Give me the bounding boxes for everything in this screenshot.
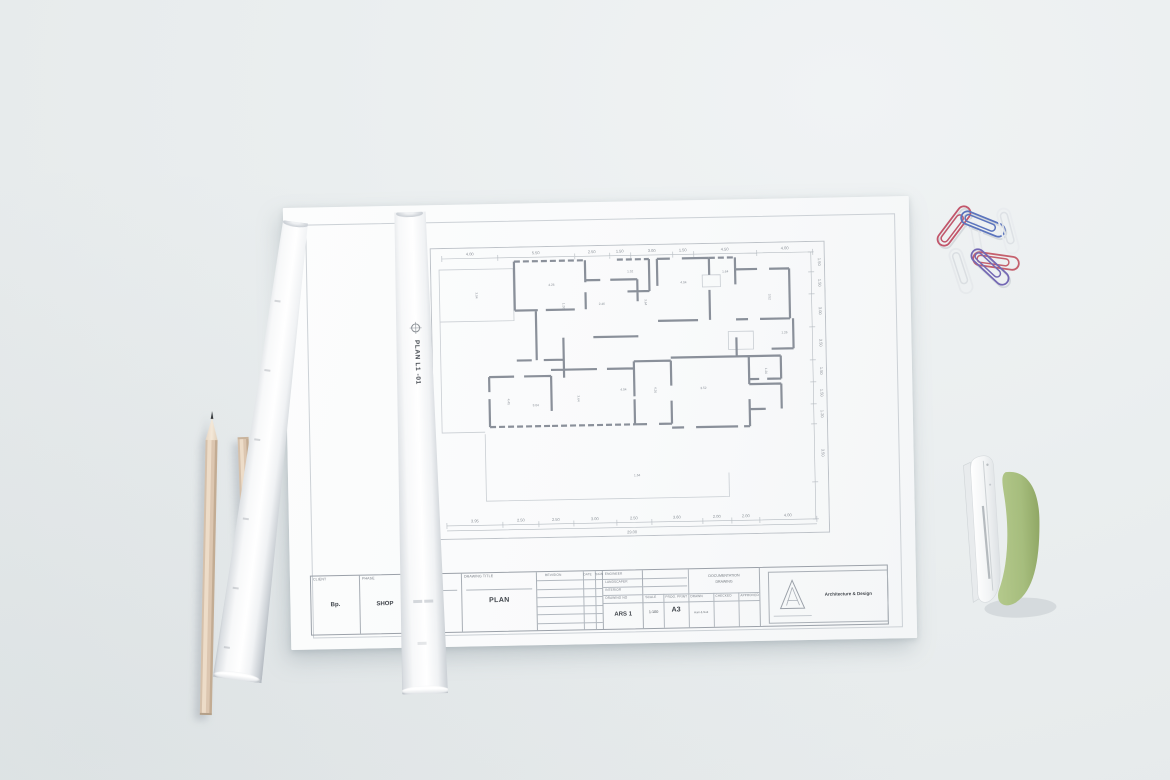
scale-label: SCALE (645, 595, 656, 599)
titleblock-revision-grid: REVISION DATE SIGN (537, 571, 604, 630)
drawn-label: DRAWN (690, 594, 702, 598)
titleblock-print-grid: DOCUMENTATION DRAWING SCALE PROG. PRINT … (643, 568, 761, 628)
client-value: Bp. (311, 602, 359, 609)
phase-label: PHASE (362, 576, 375, 580)
drawing-sheet: 4.00 5.50 2.50 1.50 3.00 1.50 4.50 4.00 … (283, 196, 917, 650)
room-label: 4.26 (653, 387, 657, 394)
prog-print-value: A3 (664, 606, 689, 613)
roll-end-bottom (401, 685, 450, 698)
titleblock-client-cell: CLIENT Bp. (311, 576, 361, 635)
dim-right: 3.50 (818, 339, 823, 348)
dim-bottom: 4.00 (784, 512, 793, 517)
dim-right: 1.50 (817, 279, 822, 288)
paper-clips (928, 193, 1043, 308)
dim-top: 5.50 (532, 250, 541, 255)
dim-top: 2.50 (588, 249, 597, 254)
dim-bottom: 2.50 (552, 517, 561, 522)
roll-end-bottom (213, 669, 261, 686)
title-block: CLIENT Bp. PHASE SHOP PROJECT LOCATION D… (310, 565, 889, 636)
room-label: 2.46 (599, 302, 606, 306)
dim-top: 3.00 (648, 248, 657, 253)
room-label: 4.45 (507, 399, 511, 406)
company-logo-box: Architecture & Design (768, 570, 889, 624)
dim-top: 1.50 (679, 247, 688, 252)
room-label: 1.26 (764, 368, 768, 375)
dim-right-column: 1.50 1.50 3.00 3.50 1.50 1.50 1.20 3.50 (817, 258, 826, 458)
room-label: 4.26 (548, 283, 555, 287)
floor-plan: 4.00 5.50 2.50 1.50 3.00 1.50 4.50 4.00 … (430, 241, 831, 541)
logo-subtext-line (774, 615, 812, 617)
dim-right: 1.50 (817, 258, 822, 267)
documentation-cell: DOCUMENTATION DRAWING (688, 568, 760, 593)
landscaper-label: LANDSCAPER (605, 579, 628, 583)
desk-surface: 4.00 5.50 2.50 1.50 3.00 1.50 4.50 4.00 … (0, 0, 1170, 780)
dim-bottom: 2.50 (630, 515, 639, 520)
dim-right: 1.50 (819, 367, 824, 376)
room-label: 3.04 (474, 292, 478, 299)
plan-window-walls (487, 257, 738, 427)
titleblock-drawing-title-cell: DRAWING TITLE PLAN (462, 572, 538, 631)
prog-print-label: PROG. PRINT (665, 594, 687, 598)
room-label: 3.04 (533, 403, 540, 407)
room-label: 3.64 (576, 395, 580, 402)
room-label: 3.52 (700, 386, 707, 390)
room-label: 1.26 (562, 303, 566, 310)
room-labels: 3.04 4.26 1.26 2.46 1.52 3.64 4.04 1.64 … (474, 266, 790, 480)
north-symbol-icon (409, 322, 421, 334)
interior-label: INTERIOR (605, 588, 621, 592)
sharpened-wood-collar (206, 418, 218, 440)
dim-bottom: 3.60 (673, 514, 682, 519)
dim-top: 4.00 (466, 251, 475, 256)
dim-top: 4.00 (781, 245, 790, 250)
dim-right: 3.00 (818, 307, 823, 316)
dim-top: 4.50 (721, 246, 730, 251)
dim-top: 1.50 (616, 249, 625, 254)
dim-bottom: 2.00 (713, 514, 722, 519)
documentation-label-line2: DRAWING (688, 579, 760, 584)
titleblock-engineer-stack: ENGINEER LANDSCAPER INTERIOR DRAWING NO … (603, 570, 644, 629)
room-label: 4.04 (680, 280, 687, 284)
drawing-no-value: ARS 1 (604, 611, 643, 618)
drawn-value: Hani & Nati (689, 610, 714, 614)
revision-label: REVISION (545, 573, 562, 577)
scale-value: 1:100 (644, 610, 664, 614)
room-label: 4.04 (620, 387, 627, 391)
room-label: 1.26 (781, 330, 788, 334)
dim-right: 1.20 (820, 410, 825, 419)
drawing-title-value: PLAN (462, 596, 536, 604)
drawing-no-label: DRAWING NO (605, 596, 627, 600)
room-label: 3.64 (644, 299, 648, 306)
engineer-label: ENGINEER (605, 572, 623, 576)
architecture-logo-icon (777, 578, 808, 613)
company-name: Architecture & Design (811, 591, 885, 597)
dim-right: 1.50 (819, 389, 824, 398)
dim-right: 3.50 (821, 449, 826, 458)
dim-bottom: 2.50 (517, 517, 526, 522)
stapler (947, 448, 1073, 627)
graphite-tip-icon (209, 411, 215, 419)
drawing-title-label: DRAWING TITLE (464, 574, 493, 579)
dim-bottom-total: 29.00 (627, 529, 638, 534)
room-label: 1.64 (634, 473, 641, 477)
dim-bottom: 2.00 (742, 513, 751, 518)
paperclip-white-lower (948, 247, 975, 295)
room-label: 1.52 (627, 269, 634, 273)
client-label: CLIENT (313, 577, 326, 581)
date-label: DATE (583, 572, 591, 576)
approved-label: APPROVED (740, 593, 759, 597)
room-label: 1.64 (722, 270, 729, 274)
stapler-green-body (994, 471, 1043, 606)
checked-label: CHECKED (715, 594, 731, 598)
room-label: 3.52 (768, 294, 772, 301)
documentation-label-line1: DOCUMENTATION (688, 573, 760, 578)
paperclip-clear-right (996, 207, 1020, 255)
stapler-shadow (984, 596, 1057, 619)
dim-bottom: 3.95 (471, 518, 480, 523)
dim-bottom: 3.00 (591, 516, 600, 521)
roll-title-text: PLAN L1 -01 (413, 340, 421, 385)
